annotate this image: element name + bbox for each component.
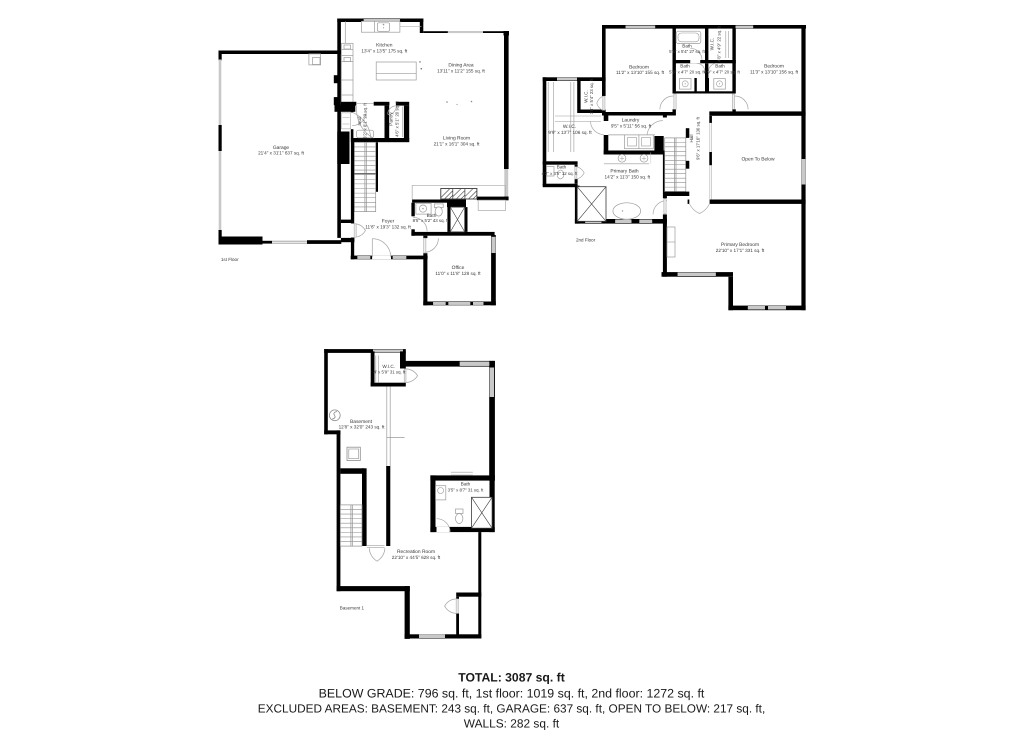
svg-text:W.I.C.: W.I.C. (382, 364, 395, 369)
svg-text:22'10" x 17'1" 331 sq. ft: 22'10" x 17'1" 331 sq. ft (716, 248, 765, 253)
svg-text:Pantry: Pantry (388, 112, 393, 126)
svg-text:9'5" x 5'11" 56 sq. ft: 9'5" x 5'11" 56 sq. ft (611, 123, 652, 128)
svg-text:3'2" x 8'1" 29 sq. ft: 3'2" x 8'1" 29 sq. ft (363, 102, 368, 138)
svg-text:W.I.C.: W.I.C. (583, 90, 588, 103)
svg-text:9'9" x 13'7" 106 sq. ft: 9'9" x 13'7" 106 sq. ft (548, 130, 592, 135)
svg-text:mud: mud (357, 116, 362, 125)
svg-text:Bath: Bath (557, 165, 567, 170)
svg-text:5'8" x 4'7" 20 sq. ft: 5'8" x 4'7" 20 sq. ft (669, 70, 705, 75)
svg-text:8'5" x 5'2" 43 sq. ft: 8'5" x 5'2" 43 sq. ft (413, 218, 449, 223)
svg-text:Open To Below: Open To Below (741, 156, 775, 162)
svg-text:W.I.C.: W.I.C. (710, 38, 715, 51)
svg-text:13'4" x 13'5" 175 sq. ft: 13'4" x 13'5" 175 sq. ft (361, 48, 408, 53)
svg-text:21'1" x 16'1" 304 sq. ft: 21'1" x 16'1" 304 sq. ft (434, 141, 481, 146)
svg-text:4'9" x 4'7" 20 sq. ft: 4'9" x 4'7" 20 sq. ft (704, 70, 740, 75)
svg-text:Basement 1: Basement 1 (340, 606, 365, 611)
svg-text:W.I.C.: W.I.C. (563, 124, 576, 130)
svg-text:13'11" x 11'2" 155 sq. ft: 13'11" x 11'2" 155 sq. ft (437, 68, 485, 73)
svg-text:11'6" x 19'3" 132 sq. ft: 11'6" x 19'3" 132 sq. ft (365, 224, 411, 229)
svg-text:3'5" x 8'7" 31 sq. ft: 3'5" x 8'7" 31 sq. ft (448, 487, 484, 492)
svg-text:4'6" x 5'1" 20 sq. ft: 4'6" x 5'1" 20 sq. ft (395, 100, 400, 136)
svg-text:3'8" x 5'4" 23 sq. ft: 3'8" x 5'4" 23 sq. ft (589, 78, 594, 114)
svg-text:Bath: Bath (715, 63, 725, 68)
svg-text:WALLS: 282 sq. ft: WALLS: 282 sq. ft (464, 716, 560, 730)
svg-text:BELOW GRADE: 796 sq. ft, 1st f: BELOW GRADE: 796 sq. ft, 1st floor: 1019… (319, 686, 705, 700)
svg-text:4' x 5'9" 31 sq. ft: 4' x 5'9" 31 sq. ft (374, 370, 406, 375)
svg-text:14'2" x 11'3" 150 sq. ft: 14'2" x 11'3" 150 sq. ft (605, 175, 651, 180)
svg-text:11'3" x 13'10" 156 sq. ft: 11'3" x 13'10" 156 sq. ft (750, 69, 799, 74)
svg-text:22'10" x 44'5" 628 sq. ft: 22'10" x 44'5" 628 sq. ft (392, 555, 441, 560)
svg-text:4'2" x 3'5" 12 sq. ft: 4'2" x 3'5" 12 sq. ft (542, 171, 578, 176)
svg-text:11'0" x 11'8" 128 sq. ft: 11'0" x 11'8" 128 sq. ft (435, 271, 481, 276)
svg-text:4'8" x 4'9" 22 sq. ft: 4'8" x 4'9" 22 sq. ft (717, 25, 722, 61)
svg-text:Bath: Bath (461, 481, 471, 486)
svg-text:12'8" x 32'0" 243 sq. ft: 12'8" x 32'0" 243 sq. ft (339, 425, 386, 430)
svg-text:2nd Floor: 2nd Floor (576, 238, 596, 243)
svg-text:9'6" x 17'10" 130 sq. ft: 9'6" x 17'10" 130 sq. ft (696, 116, 701, 160)
svg-text:Bath: Bath (682, 43, 692, 48)
svg-text:Bath: Bath (680, 63, 690, 68)
svg-text:Hall: Hall (689, 135, 694, 143)
svg-text:11'2" x 13'10" 155 sq. ft: 11'2" x 13'10" 155 sq. ft (616, 70, 665, 75)
svg-text:5'5" x 5'4" 27 sq. ft: 5'5" x 5'4" 27 sq. ft (669, 49, 705, 54)
svg-text:21'4" x 31'1" 637 sq. ft: 21'4" x 31'1" 637 sq. ft (258, 151, 305, 156)
svg-text:1st Floor: 1st Floor (221, 257, 239, 262)
svg-text:EXCLUDED AREAS: BASEMENT: 243: EXCLUDED AREAS: BASEMENT: 243 sq. ft, GA… (258, 701, 765, 715)
svg-text:Recreation Room: Recreation Room (397, 549, 435, 555)
svg-text:TOTAL: 3087 sq. ft: TOTAL: 3087 sq. ft (458, 671, 565, 685)
svg-text:Primary Bedroom: Primary Bedroom (721, 242, 759, 248)
svg-text:Laundry: Laundry (622, 117, 640, 123)
